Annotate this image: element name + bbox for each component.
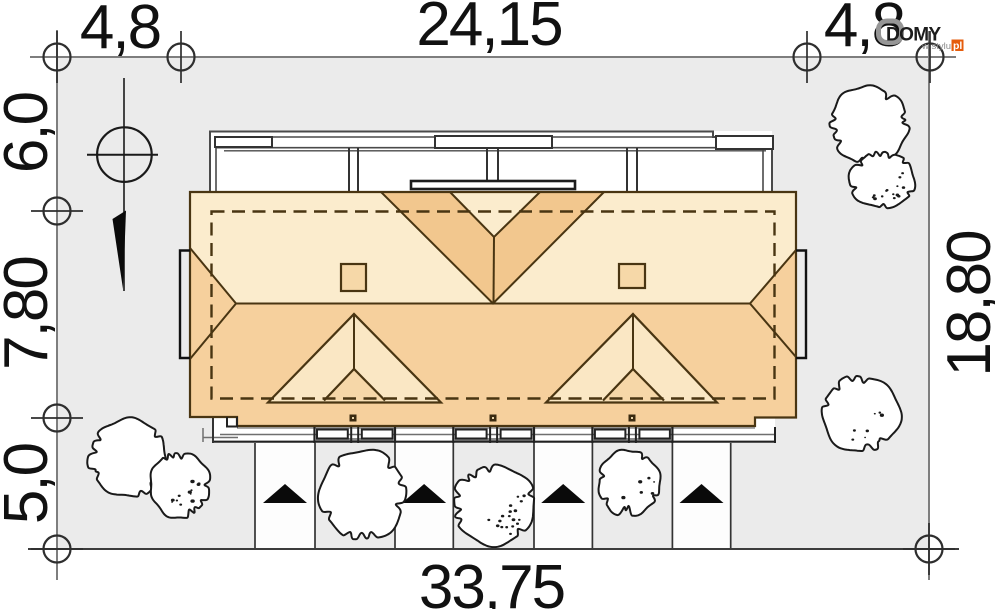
svg-text:pl: pl: [953, 40, 962, 52]
svg-text:4,8: 4,8: [80, 0, 160, 62]
svg-text:5,0: 5,0: [0, 443, 61, 524]
svg-text:7,80: 7,80: [0, 257, 61, 370]
svg-text:w stylu: w stylu: [921, 41, 951, 52]
svg-text:33,75: 33,75: [419, 553, 564, 609]
svg-text:6,0: 6,0: [0, 92, 61, 173]
svg-text:18,80: 18,80: [935, 231, 995, 377]
svg-text:24,15: 24,15: [416, 0, 561, 59]
